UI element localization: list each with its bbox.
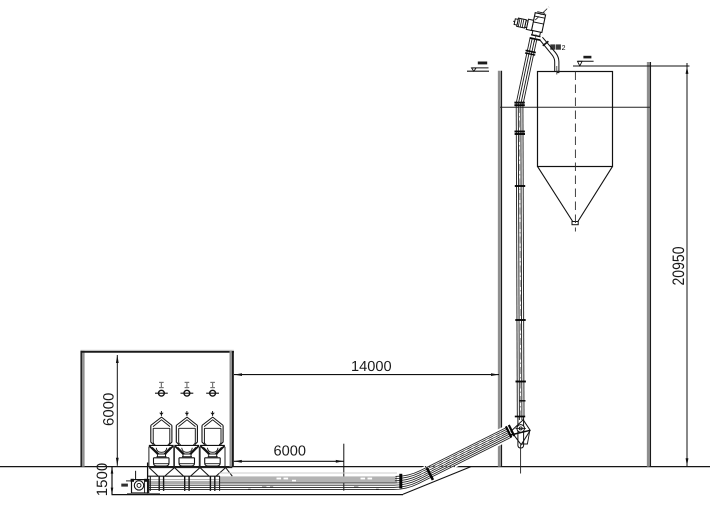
svg-text:6000: 6000: [274, 444, 306, 460]
svg-text:20950: 20950: [669, 247, 688, 286]
svg-text:14000: 14000: [351, 359, 392, 375]
svg-text:6000: 6000: [100, 393, 117, 426]
svg-text:1500: 1500: [94, 463, 111, 496]
svg-text:2: 2: [562, 45, 566, 52]
